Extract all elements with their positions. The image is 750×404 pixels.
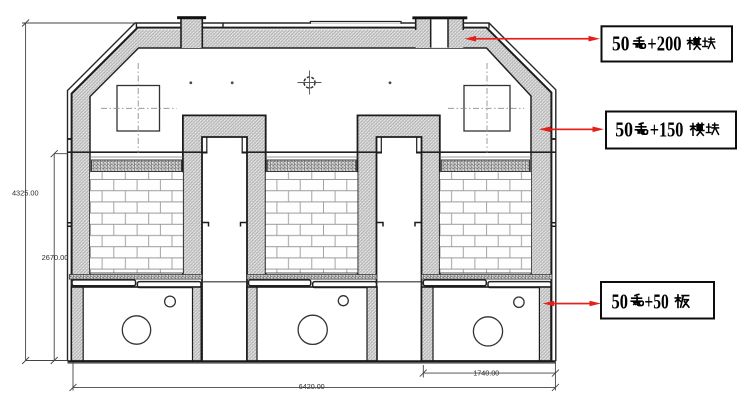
svg-text:4325.00: 4325.00: [12, 188, 39, 197]
svg-text:6420.00: 6420.00: [299, 382, 325, 391]
svg-text:+50: +50: [644, 289, 668, 313]
svg-text:50: 50: [612, 289, 628, 313]
svg-text:50: 50: [612, 32, 629, 56]
svg-text:1740.00: 1740.00: [473, 369, 499, 378]
svg-text:+150: +150: [650, 118, 684, 142]
svg-text:+200: +200: [647, 32, 681, 56]
svg-text:2670.00: 2670.00: [42, 253, 69, 262]
svg-text:50: 50: [615, 118, 633, 142]
